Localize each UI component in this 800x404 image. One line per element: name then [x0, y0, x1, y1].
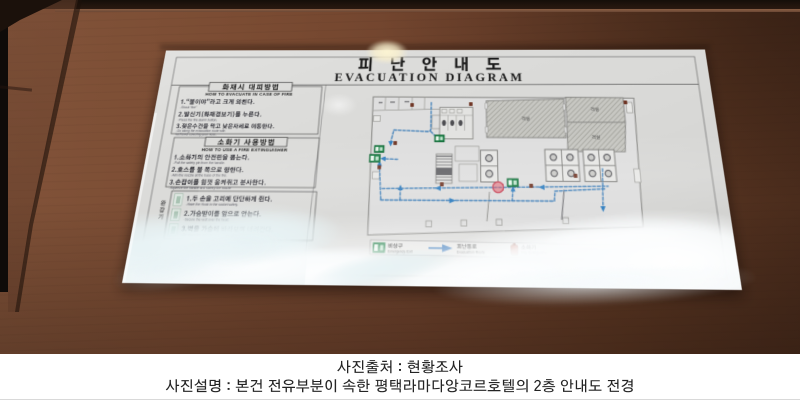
svg-text:HOW TO EVACUATE IN CASE OF FIR: HOW TO EVACUATE IN CASE OF FIRE	[205, 92, 293, 97]
svg-text:-Shout “fire”: -Shout “fire”	[180, 105, 197, 109]
svg-text:wet towel covering your nose.: wet towel covering your nose.	[175, 132, 217, 136]
svg-text:EVACUATION DIAGRAM: EVACUATION DIAGRAM	[334, 72, 525, 84]
svg-text:-Press the fire alarm button.: -Press the fire alarm button.	[178, 118, 218, 122]
